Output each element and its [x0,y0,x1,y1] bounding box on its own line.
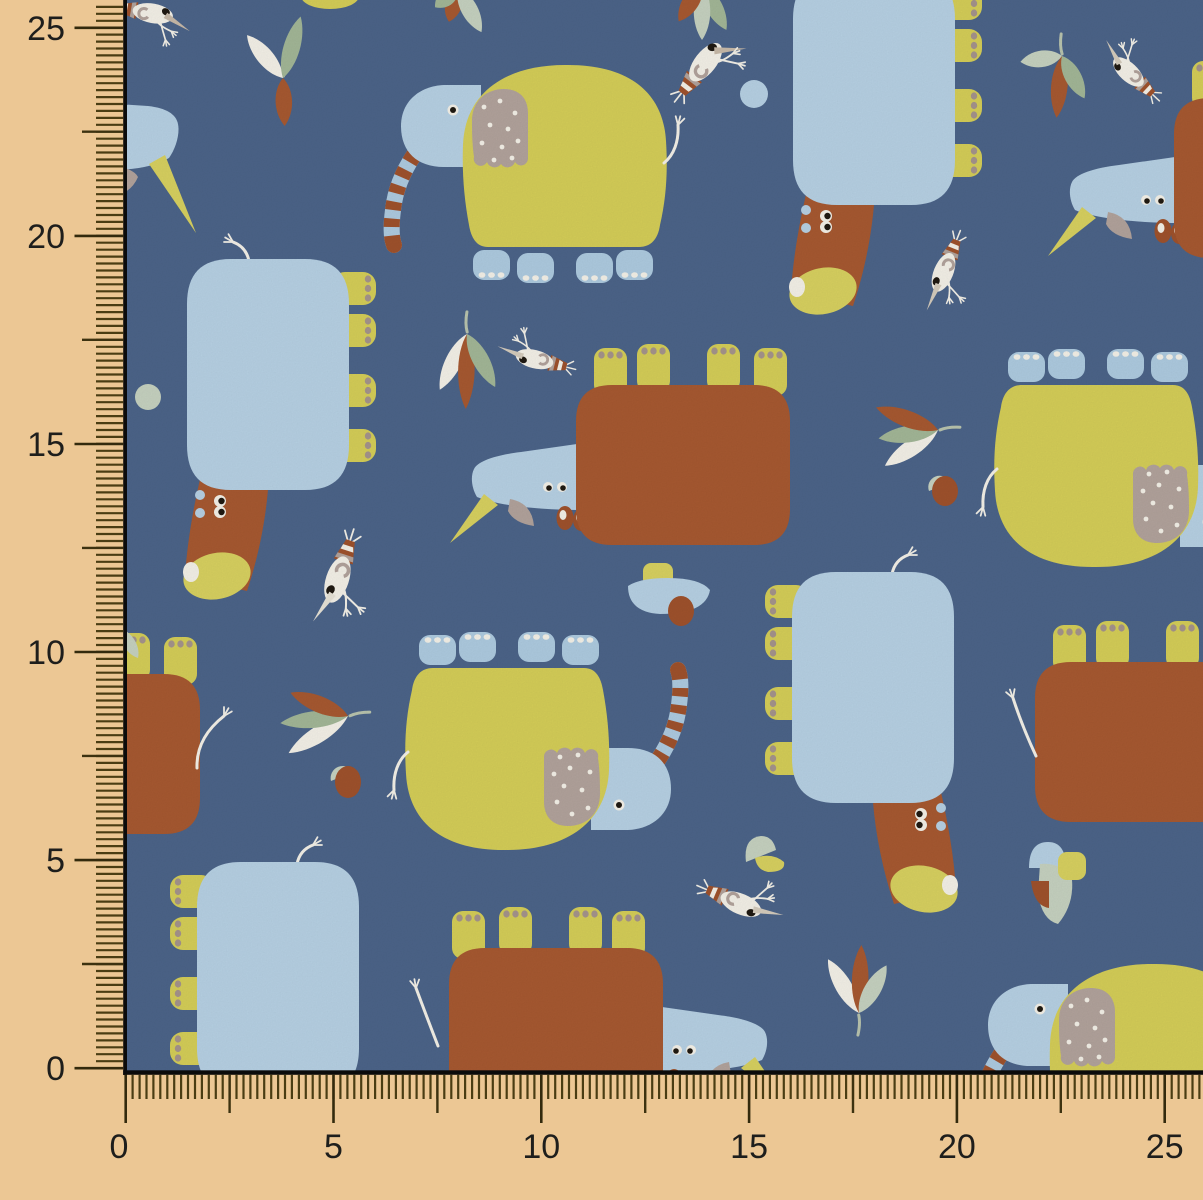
svg-text:5: 5 [46,842,65,880]
svg-text:25: 25 [27,10,65,48]
svg-text:20: 20 [938,1128,976,1166]
svg-text:25: 25 [1146,1128,1184,1166]
svg-text:0: 0 [110,1128,129,1166]
svg-text:0: 0 [46,1050,65,1088]
svg-text:5: 5 [324,1128,343,1166]
svg-text:20: 20 [27,218,65,256]
svg-text:15: 15 [27,426,65,464]
svg-text:10: 10 [27,634,65,672]
svg-text:10: 10 [522,1128,560,1166]
svg-text:15: 15 [730,1128,768,1166]
